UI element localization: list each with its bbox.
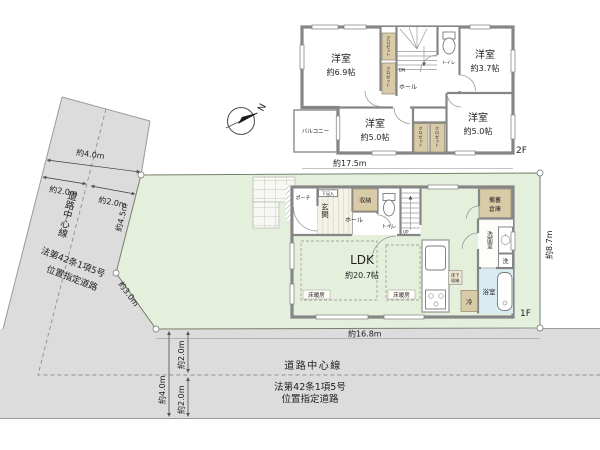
dim-label: 約4.0m	[157, 375, 167, 404]
toilet-label: トイレ	[442, 61, 456, 66]
south-road-law-label-2: 位置指定道路	[281, 393, 339, 405]
underfloor-label-2: 収納	[451, 277, 459, 283]
dim-label: 約2.0m	[176, 385, 186, 414]
bedroom-c-name: 洋室	[365, 117, 385, 130]
storage-label: 収納	[359, 197, 371, 205]
ldk-area: 約20.7帖	[345, 270, 379, 280]
window	[511, 115, 515, 139]
window	[316, 315, 368, 319]
dim-label-depth: 約8.7m	[544, 230, 554, 259]
closet-label: クロゼット	[386, 35, 391, 57]
window	[384, 315, 424, 319]
dim-label: 約2.0m	[176, 340, 186, 369]
balcony-label: バルコニー	[302, 128, 329, 135]
window	[372, 151, 396, 155]
boundary-marker	[138, 172, 144, 178]
bedroom-d-area: 約5.0帖	[464, 126, 493, 136]
window	[312, 25, 338, 29]
bedroom-b-name: 洋室	[475, 48, 495, 61]
closet-label: クロゼット	[435, 125, 440, 147]
window	[344, 25, 366, 29]
floor-plan-diagram: 約4.0m 約2.0m 約2.0m 約4.5m 約3.0m 道路中心線 法第42…	[0, 0, 600, 450]
boundary-marker	[153, 326, 159, 332]
dim-label-2f-width: 約17.5m	[333, 158, 367, 168]
shoe-box-label: 下足入	[322, 191, 334, 196]
bedroom-a-area: 約6.9帖	[327, 67, 356, 77]
entrance-label: 玄関	[320, 202, 329, 220]
south-road-surface	[0, 329, 600, 419]
toilet-tank-icon	[383, 194, 395, 201]
floor1-tag: 1F	[520, 309, 531, 319]
bedroom-d-name: 洋室	[468, 111, 488, 124]
window	[428, 185, 458, 189]
kitchen-sink-icon	[426, 246, 446, 270]
fridge-label: 冷	[466, 297, 473, 306]
stock-storage-label-2: 倉庫	[489, 205, 501, 213]
bedroom-a-name: 洋室	[331, 52, 351, 65]
closet-label: クロゼット	[386, 65, 391, 87]
boundary-marker	[113, 270, 119, 276]
toilet-label: トイレ	[381, 224, 396, 230]
south-road	[0, 329, 600, 420]
stock-storage-label-1: 備蓄	[489, 196, 501, 204]
bedroom-b-area: 約3.7帖	[471, 63, 500, 73]
toilet-bowl-icon	[384, 200, 395, 216]
porch-label: ポーチ	[295, 195, 310, 202]
window	[511, 232, 515, 250]
window	[455, 151, 475, 155]
toilet-bowl-icon	[443, 38, 455, 54]
stairs-down-label: DN	[399, 68, 406, 74]
boundary-marker	[537, 325, 543, 331]
dim-label-1f-width: 約16.8m	[348, 329, 382, 339]
bedroom-c-area: 約5.0帖	[361, 132, 390, 142]
floor-plan-page: 約4.0m 約2.0m 約2.0m 約4.5m 約3.0m 道路中心線 法第42…	[0, 0, 600, 450]
floor2-toilet: トイレ	[442, 32, 456, 66]
boundary-marker	[537, 170, 543, 176]
hall-label: ホール	[345, 217, 363, 224]
window	[511, 50, 515, 72]
bathroom-label: 浴室	[483, 287, 497, 296]
hall-label: ホール	[399, 84, 417, 91]
window	[290, 284, 294, 304]
south-road-centerline-label: 道路中心線	[284, 359, 342, 372]
laundry-label: 洗	[502, 258, 508, 266]
stairs-up-label: UP	[403, 230, 409, 235]
closet-label: クロゼット	[419, 125, 424, 147]
balcony-window	[336, 116, 340, 140]
window	[290, 243, 294, 269]
vanity-cabinet	[499, 227, 513, 253]
ldk-name: LDK	[350, 253, 375, 267]
floor2-tag: 2F	[516, 146, 527, 156]
south-road-law-label-1: 法第42条1項5号	[274, 381, 346, 393]
floor1-toilet: トイレ	[381, 194, 396, 231]
washroom-label: 洗面室	[486, 230, 493, 249]
underfloor-label-1: 床下	[451, 272, 459, 278]
window	[470, 25, 490, 29]
floor-heating-label: 床暖房	[393, 291, 410, 299]
window	[300, 45, 304, 69]
floor-heating-label: 床暖房	[308, 291, 325, 299]
approach-tiles	[253, 202, 279, 228]
